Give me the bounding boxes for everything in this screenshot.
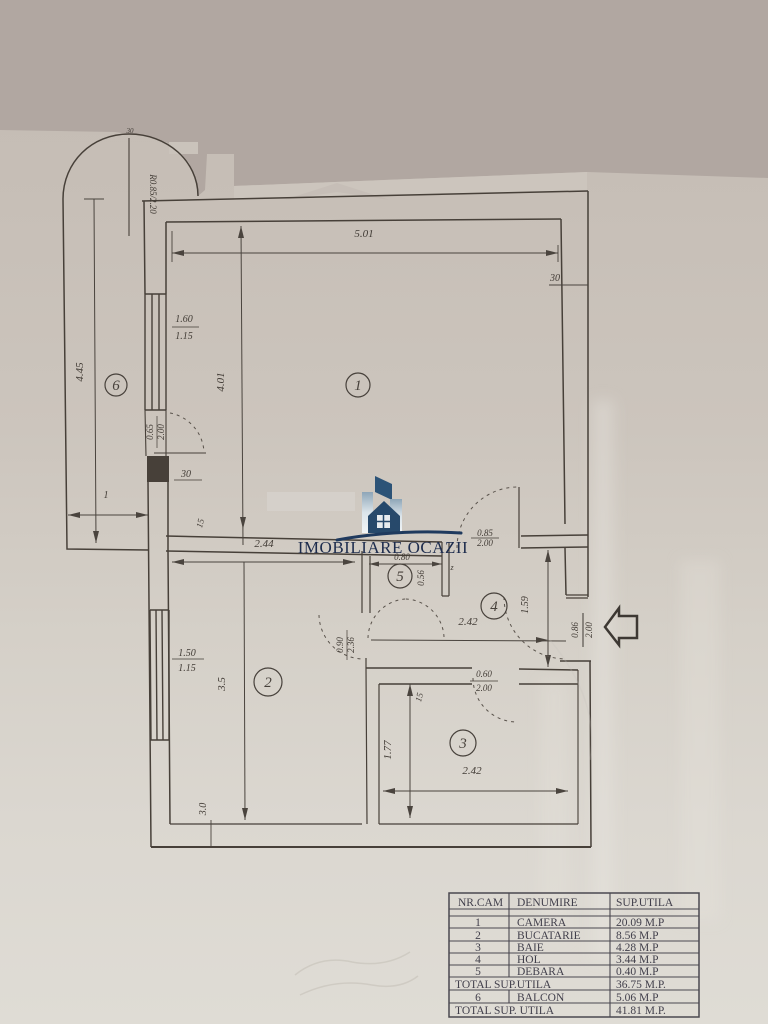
svg-text:5.06 M.P: 5.06 M.P xyxy=(616,992,659,1004)
svg-text:6: 6 xyxy=(475,992,481,1004)
svg-text:1.77: 1.77 xyxy=(382,740,394,760)
svg-text:TOTAL SUP. UTILA: TOTAL SUP. UTILA xyxy=(455,1005,555,1017)
svg-text:4: 4 xyxy=(475,954,481,966)
svg-text:41.81 M.P.: 41.81 M.P. xyxy=(616,1005,666,1017)
svg-text:1.59: 1.59 xyxy=(520,596,531,614)
svg-text:1.15: 1.15 xyxy=(178,663,196,674)
svg-text:3.44 M.P: 3.44 M.P xyxy=(616,954,659,966)
svg-text:2.00: 2.00 xyxy=(156,424,166,440)
svg-text:2.44: 2.44 xyxy=(254,538,274,550)
svg-text:DEBARA: DEBARA xyxy=(517,966,565,978)
svg-text:1.50: 1.50 xyxy=(178,648,196,659)
svg-text:1: 1 xyxy=(104,490,109,501)
svg-text:SUP.UTILA: SUP.UTILA xyxy=(616,897,674,909)
svg-text:CAMERA: CAMERA xyxy=(517,917,567,929)
svg-text:2.00: 2.00 xyxy=(584,622,594,638)
svg-text:2.00: 2.00 xyxy=(477,538,493,548)
svg-text:2: 2 xyxy=(475,930,481,942)
svg-text:2.42: 2.42 xyxy=(458,616,478,628)
svg-text:NR.CAM: NR.CAM xyxy=(458,897,503,909)
svg-text:1.15: 1.15 xyxy=(175,331,193,342)
svg-text:8.56 M.P: 8.56 M.P xyxy=(616,930,659,942)
svg-text:5.01: 5.01 xyxy=(354,228,373,240)
svg-text:R0.85/2.20: R0.85/2.20 xyxy=(148,173,158,214)
svg-text:1: 1 xyxy=(475,917,481,929)
svg-text:1.60: 1.60 xyxy=(175,314,193,325)
svg-text:30: 30 xyxy=(549,273,560,284)
svg-text:3: 3 xyxy=(458,736,467,752)
svg-text:2.36: 2.36 xyxy=(346,637,356,653)
svg-text:BALCON: BALCON xyxy=(517,992,565,1004)
svg-text:IMOBILIARE OCAZII: IMOBILIARE OCAZII xyxy=(298,538,468,557)
svg-text:4.28 M.P: 4.28 M.P xyxy=(616,942,659,954)
svg-text:30: 30 xyxy=(180,469,191,480)
svg-text:3.5: 3.5 xyxy=(216,677,228,692)
svg-text:HOL: HOL xyxy=(517,954,541,966)
svg-text:1: 1 xyxy=(354,378,362,394)
svg-text:TOTAL SUP.UTILA: TOTAL SUP.UTILA xyxy=(455,979,552,991)
svg-text:0.65: 0.65 xyxy=(145,424,155,440)
svg-text:0.40 M.P: 0.40 M.P xyxy=(616,966,659,978)
svg-text:0.56: 0.56 xyxy=(416,570,426,586)
svg-text:3: 3 xyxy=(475,942,481,954)
svg-text:0.60: 0.60 xyxy=(476,669,492,679)
svg-text:DENUMIRE: DENUMIRE xyxy=(517,897,578,909)
svg-text:6: 6 xyxy=(112,378,120,394)
svg-text:4: 4 xyxy=(490,599,498,615)
svg-text:0.86: 0.86 xyxy=(570,622,580,638)
svg-text:BUCATARIE: BUCATARIE xyxy=(517,930,581,942)
svg-text:36.75 M.P.: 36.75 M.P. xyxy=(616,979,666,991)
svg-text:4.45: 4.45 xyxy=(74,362,86,382)
svg-text:5: 5 xyxy=(396,569,404,585)
svg-text:20.09 M.P: 20.09 M.P xyxy=(616,917,664,929)
svg-text:2.00: 2.00 xyxy=(476,683,492,693)
svg-text:2.42: 2.42 xyxy=(462,765,482,777)
svg-text:4.01: 4.01 xyxy=(215,372,227,391)
svg-text:BAIE: BAIE xyxy=(517,942,544,954)
svg-text:0.90: 0.90 xyxy=(335,637,345,653)
svg-text:2: 2 xyxy=(264,675,272,691)
svg-text:30: 30 xyxy=(126,127,135,135)
svg-text:3.0: 3.0 xyxy=(198,803,209,817)
svg-text:0.85: 0.85 xyxy=(477,528,493,538)
svg-text:5: 5 xyxy=(475,966,481,978)
